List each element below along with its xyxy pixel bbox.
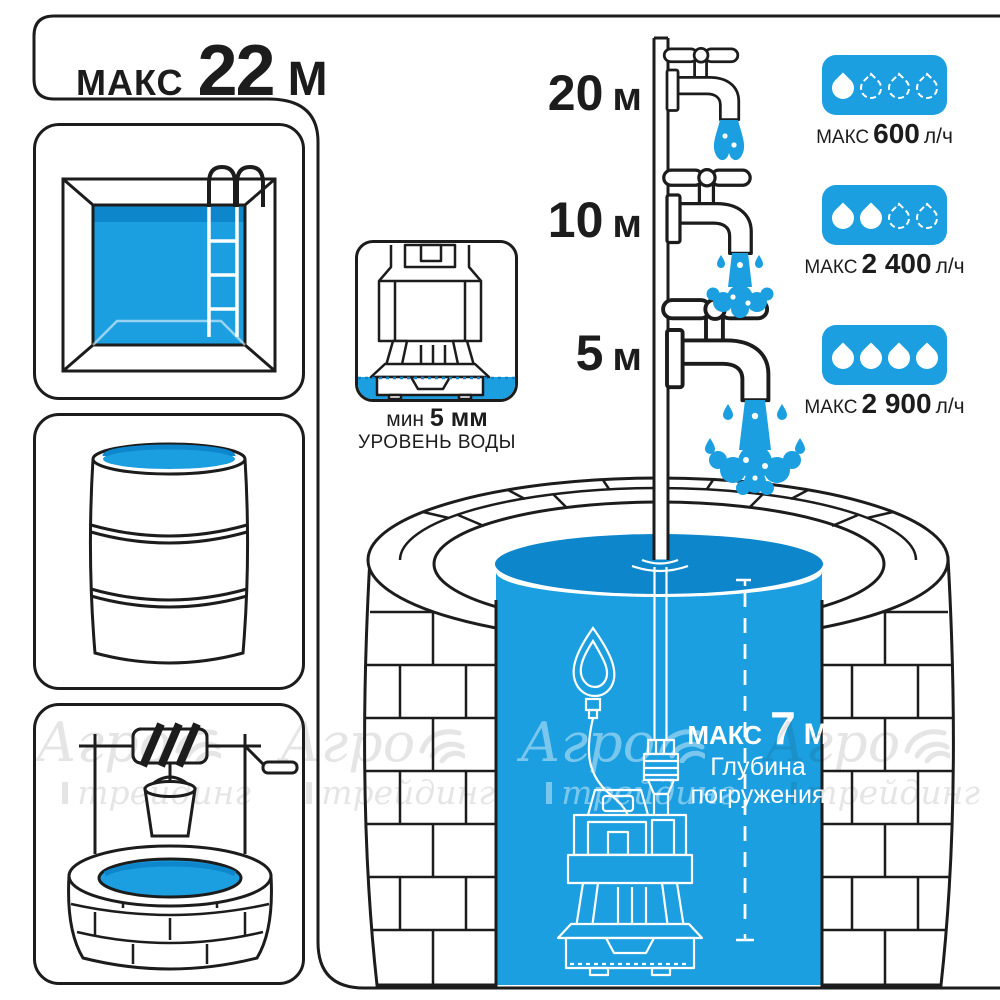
min-level-prefix: мин bbox=[386, 408, 424, 431]
pump-min-level-icon bbox=[358, 243, 515, 399]
min-water-level-panel bbox=[355, 240, 518, 402]
flow-label-600: МАКС600л/ч bbox=[799, 118, 970, 150]
well-with-bucket-icon bbox=[36, 706, 302, 982]
max-head-prefix: МАКС bbox=[76, 62, 183, 104]
water-stream-large bbox=[705, 400, 805, 495]
application-barrel-panel bbox=[33, 413, 305, 690]
flow-drops-icon bbox=[829, 202, 941, 229]
max-head-value: 22 bbox=[197, 30, 273, 112]
application-well-panel bbox=[33, 703, 305, 985]
min-level-value: 5 мм bbox=[430, 404, 488, 432]
tap-icon-20m bbox=[664, 48, 739, 119]
droplet-dashed-icon bbox=[883, 72, 914, 103]
flow-drops-icon bbox=[829, 72, 941, 99]
riser-label-20m: 20м bbox=[548, 64, 642, 122]
flow-badge-600 bbox=[822, 55, 947, 115]
tap-icon-5m bbox=[663, 299, 768, 400]
immersion-depth-caption: МАКС 7 М Глубина погружения bbox=[668, 714, 848, 809]
barrel-icon bbox=[36, 416, 302, 687]
flow-badge-2400 bbox=[822, 185, 947, 245]
max-head-title: МАКС 22 М bbox=[76, 30, 328, 112]
submersible-pump bbox=[558, 790, 702, 975]
riser-label-10m: 10м bbox=[548, 191, 642, 249]
tap-icon-10m bbox=[664, 170, 751, 254]
min-level-caption-text: УРОВЕНЬ ВОДЫ bbox=[330, 431, 544, 454]
flow-badge-2900 bbox=[822, 325, 947, 385]
droplet-filled-icon bbox=[827, 342, 858, 373]
droplet-filled-icon bbox=[883, 342, 914, 373]
flow-label-2400: МАКС2 400л/ч bbox=[799, 248, 970, 280]
droplet-filled-icon bbox=[855, 342, 886, 373]
min-water-level-caption: мин 5 мм УРОВЕНЬ ВОДЫ bbox=[330, 407, 544, 454]
water-stream-medium bbox=[707, 253, 774, 318]
application-pool-panel bbox=[33, 123, 305, 400]
droplet-dashed-icon bbox=[911, 202, 942, 233]
riser-label-5m: 5м bbox=[576, 324, 642, 382]
max-head-unit: М bbox=[288, 52, 328, 107]
droplet-filled-icon bbox=[855, 202, 886, 233]
pool-icon bbox=[36, 126, 302, 397]
pump-infographic: МАКС 22 М bbox=[0, 0, 1000, 1000]
droplet-filled-icon bbox=[911, 342, 942, 373]
droplet-filled-icon bbox=[827, 202, 858, 233]
flow-label-2900: МАКС2 900л/ч bbox=[799, 388, 970, 420]
droplet-dashed-icon bbox=[855, 72, 886, 103]
flow-drops-icon bbox=[829, 342, 941, 369]
water-stream-small bbox=[714, 120, 744, 160]
droplet-dashed-icon bbox=[911, 72, 942, 103]
droplet-filled-icon bbox=[827, 72, 858, 103]
droplet-dashed-icon bbox=[883, 202, 914, 233]
